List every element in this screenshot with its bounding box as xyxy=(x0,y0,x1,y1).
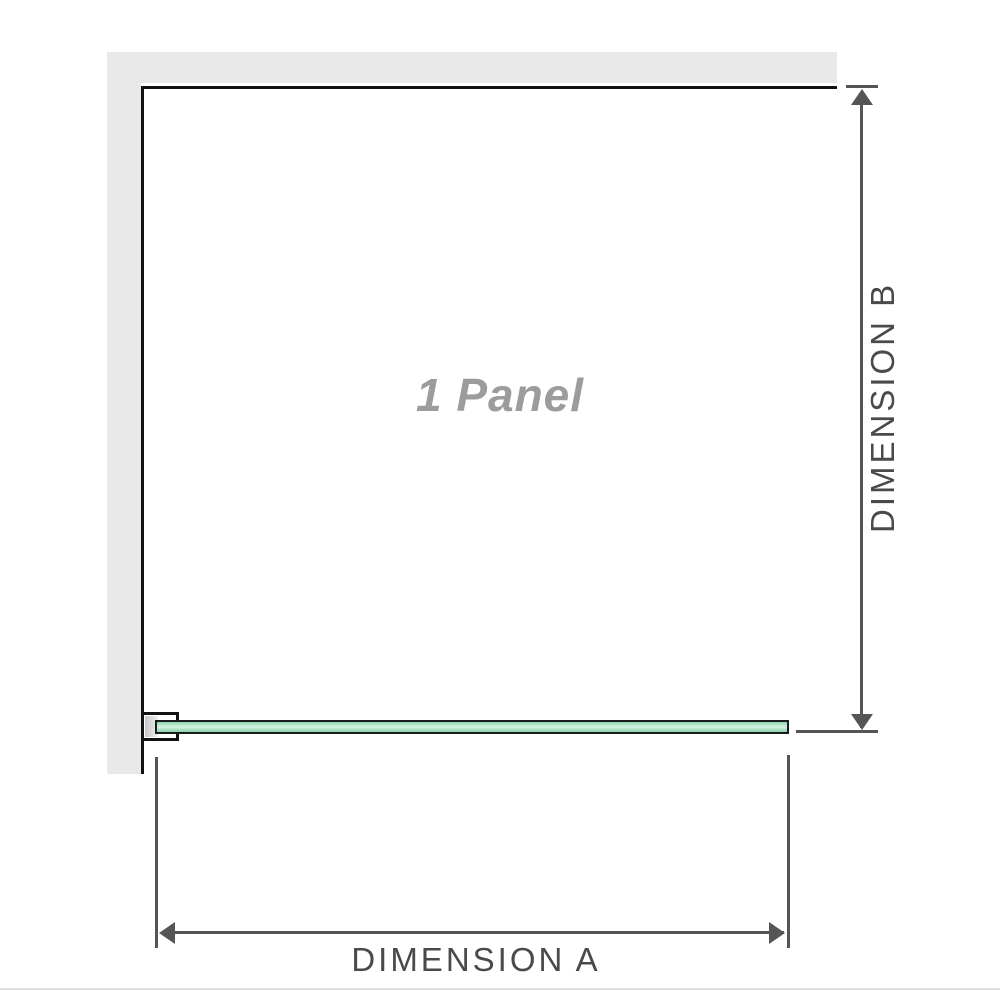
panel-configuration-diagram: 1 Panel DIMENSION B DIMENSION A xyxy=(0,0,1000,1000)
glass-panel-bar xyxy=(155,720,789,734)
dimension-b-arrow-up-icon xyxy=(851,89,873,105)
wall-horizontal-strip xyxy=(107,52,837,83)
dimension-a-line xyxy=(164,931,784,934)
dimension-b-line xyxy=(860,92,863,728)
dimension-b-arrow-down-icon xyxy=(851,714,873,730)
panel-outline-top-edge xyxy=(141,86,837,89)
dimension-b-label: DIMENSION B xyxy=(864,293,906,533)
dimension-a-label: DIMENSION A xyxy=(166,941,786,979)
dimension-b-bottom-tick xyxy=(796,730,878,733)
dimension-b-top-tick xyxy=(846,85,878,88)
panel-count-label: 1 Panel xyxy=(300,368,700,422)
dimension-a-right-extension xyxy=(787,755,790,948)
page-bottom-hairline xyxy=(0,988,1000,990)
wall-vertical-strip xyxy=(107,52,141,774)
panel-outline-left-edge xyxy=(141,86,144,774)
dimension-a-left-extension xyxy=(155,757,158,948)
